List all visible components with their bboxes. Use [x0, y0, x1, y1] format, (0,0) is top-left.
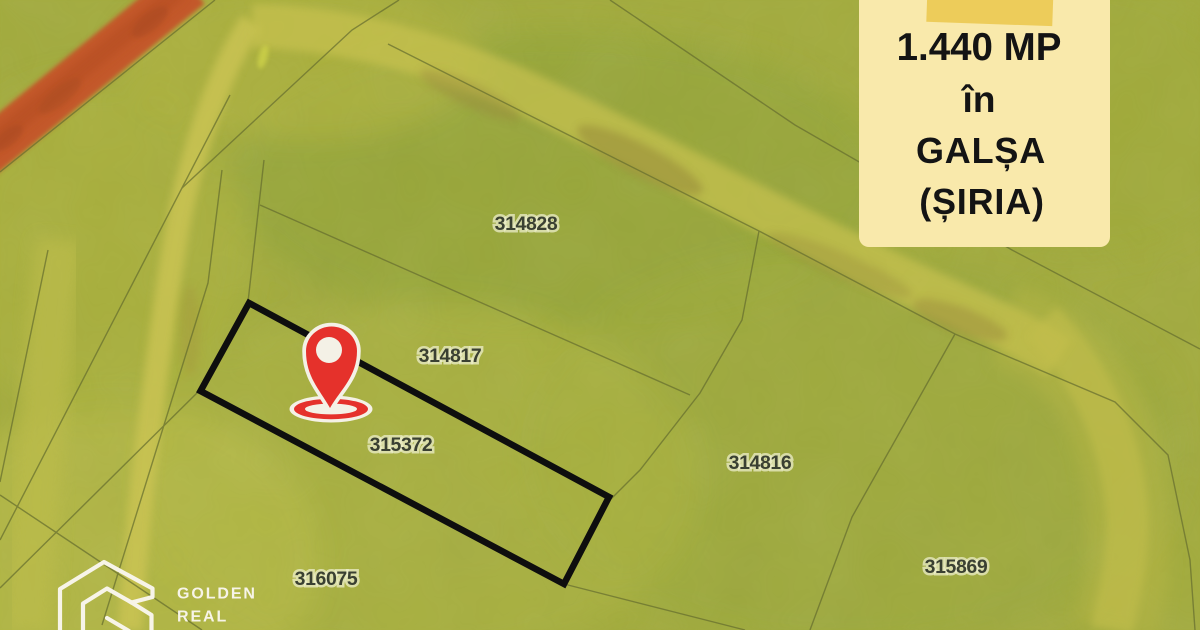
svg-text:315869: 315869: [925, 556, 988, 578]
svg-text:GOLDEN: GOLDEN: [177, 586, 257, 603]
svg-text:GALȘA: GALȘA: [916, 130, 1046, 171]
svg-text:315372: 315372: [370, 434, 433, 456]
svg-text:în: în: [961, 79, 996, 120]
svg-text:314816: 314816: [729, 452, 792, 474]
svg-text:1.440 MP: 1.440 MP: [897, 26, 1062, 69]
svg-text:314817: 314817: [419, 345, 482, 367]
svg-text:REAL: REAL: [177, 609, 228, 626]
svg-text:(ȘIRIA): (ȘIRIA): [919, 181, 1045, 222]
svg-text:316075: 316075: [295, 568, 358, 590]
svg-text:314828: 314828: [495, 213, 558, 235]
